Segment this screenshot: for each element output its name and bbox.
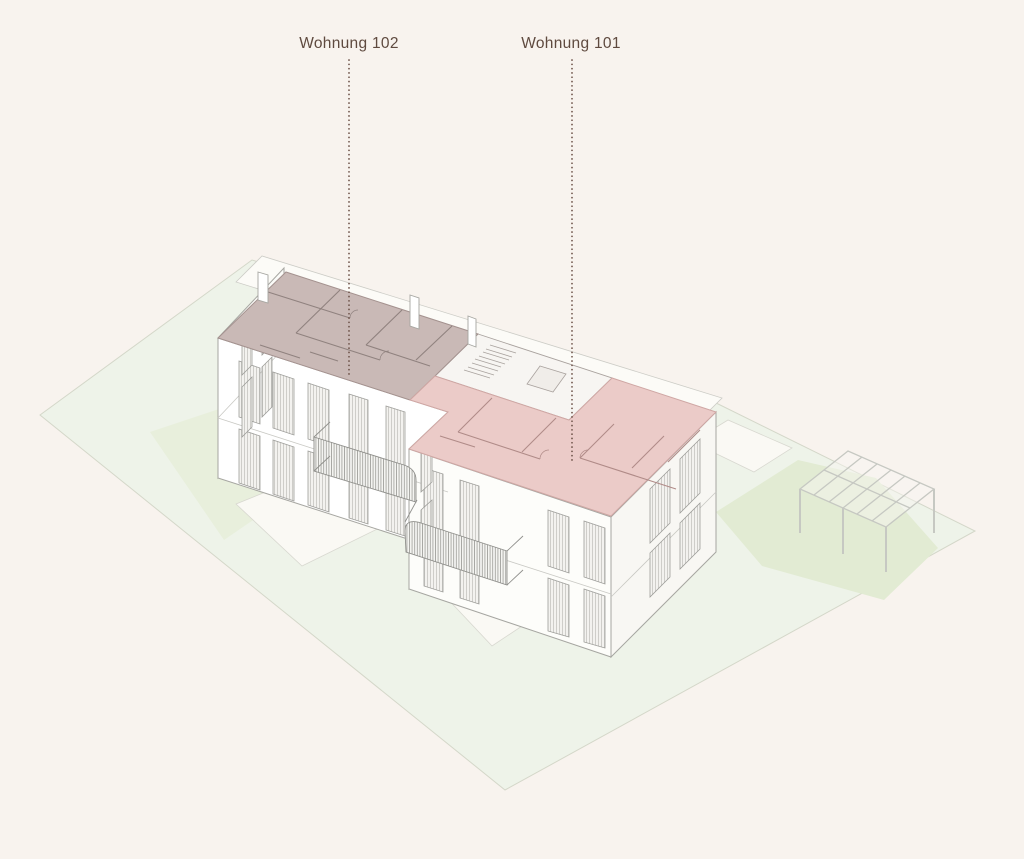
window <box>273 440 294 501</box>
window <box>548 578 569 637</box>
window <box>308 383 329 446</box>
window <box>242 377 252 437</box>
window <box>460 480 479 546</box>
window <box>584 521 605 584</box>
apartment-102-label[interactable]: Wohnung 102 <box>299 35 399 53</box>
cut-wall-slab <box>258 272 268 303</box>
window <box>262 357 272 417</box>
axonometric-drawing <box>0 0 1024 859</box>
cut-wall-slab <box>410 295 419 329</box>
window <box>584 589 605 648</box>
cut-wall-slab <box>468 316 476 347</box>
window <box>239 429 260 490</box>
axonometric-site-view: Wohnung 102 Wohnung 101 <box>0 0 1024 859</box>
window <box>273 372 294 435</box>
window <box>548 510 569 573</box>
apartment-101-label[interactable]: Wohnung 101 <box>521 35 621 53</box>
